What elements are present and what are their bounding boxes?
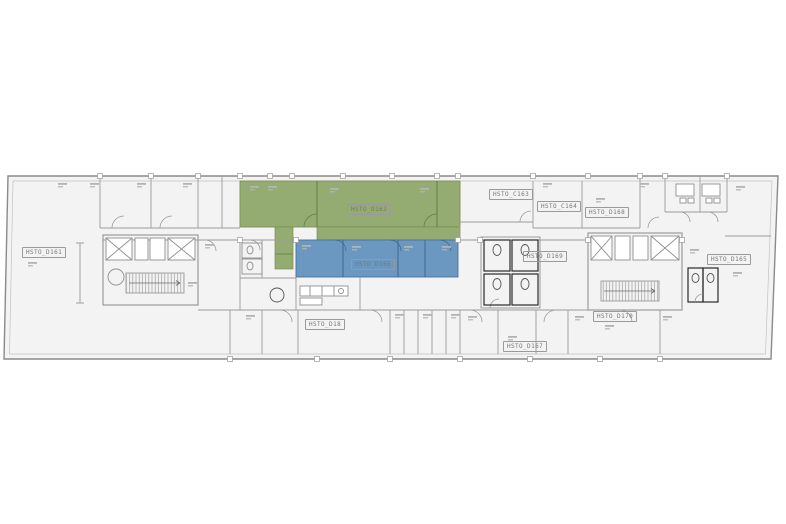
stairs-left: [126, 273, 184, 293]
room-label-hsto-d170[interactable]: HSTO_D170: [593, 311, 637, 322]
highlighted-corridor-green[interactable]: [317, 227, 460, 240]
chair-icon: [688, 198, 694, 203]
room-label-hsto-d165[interactable]: HSTO_D165: [707, 254, 751, 265]
room-label-hsto-d18[interactable]: HSTO_D18: [305, 319, 345, 330]
chair-icon: [680, 198, 686, 203]
desk-icon: [676, 184, 694, 196]
room-label-hsto-d168[interactable]: HSTO_D168: [585, 207, 629, 218]
room-label-hsto-d167[interactable]: HSTO_D167: [503, 341, 547, 352]
room-label-hsto-d162[interactable]: HSTO_D162: [347, 204, 391, 215]
room-label-hsto-c164[interactable]: HSTO_C164: [537, 201, 581, 212]
room-label-hsto-d161[interactable]: HSTO_D161: [22, 247, 66, 258]
desk-icon: [702, 184, 720, 196]
room-label-hsto-d166[interactable]: HSTO_D166: [351, 259, 395, 270]
stairs-right: [601, 281, 659, 301]
chair-icon: [706, 198, 712, 203]
elevator-core-right: [591, 236, 679, 260]
room-label-hsto-c163[interactable]: HSTO_C163: [489, 189, 533, 200]
highlighted-strip-green[interactable]: [275, 227, 293, 269]
floor-plan-canvas: HSTO_D161 HSTO_D162 HSTO_C163 HSTO_C164 …: [0, 0, 786, 524]
chair-icon: [714, 198, 720, 203]
room-label-hsto-d169[interactable]: HSTO_D169: [523, 251, 567, 262]
